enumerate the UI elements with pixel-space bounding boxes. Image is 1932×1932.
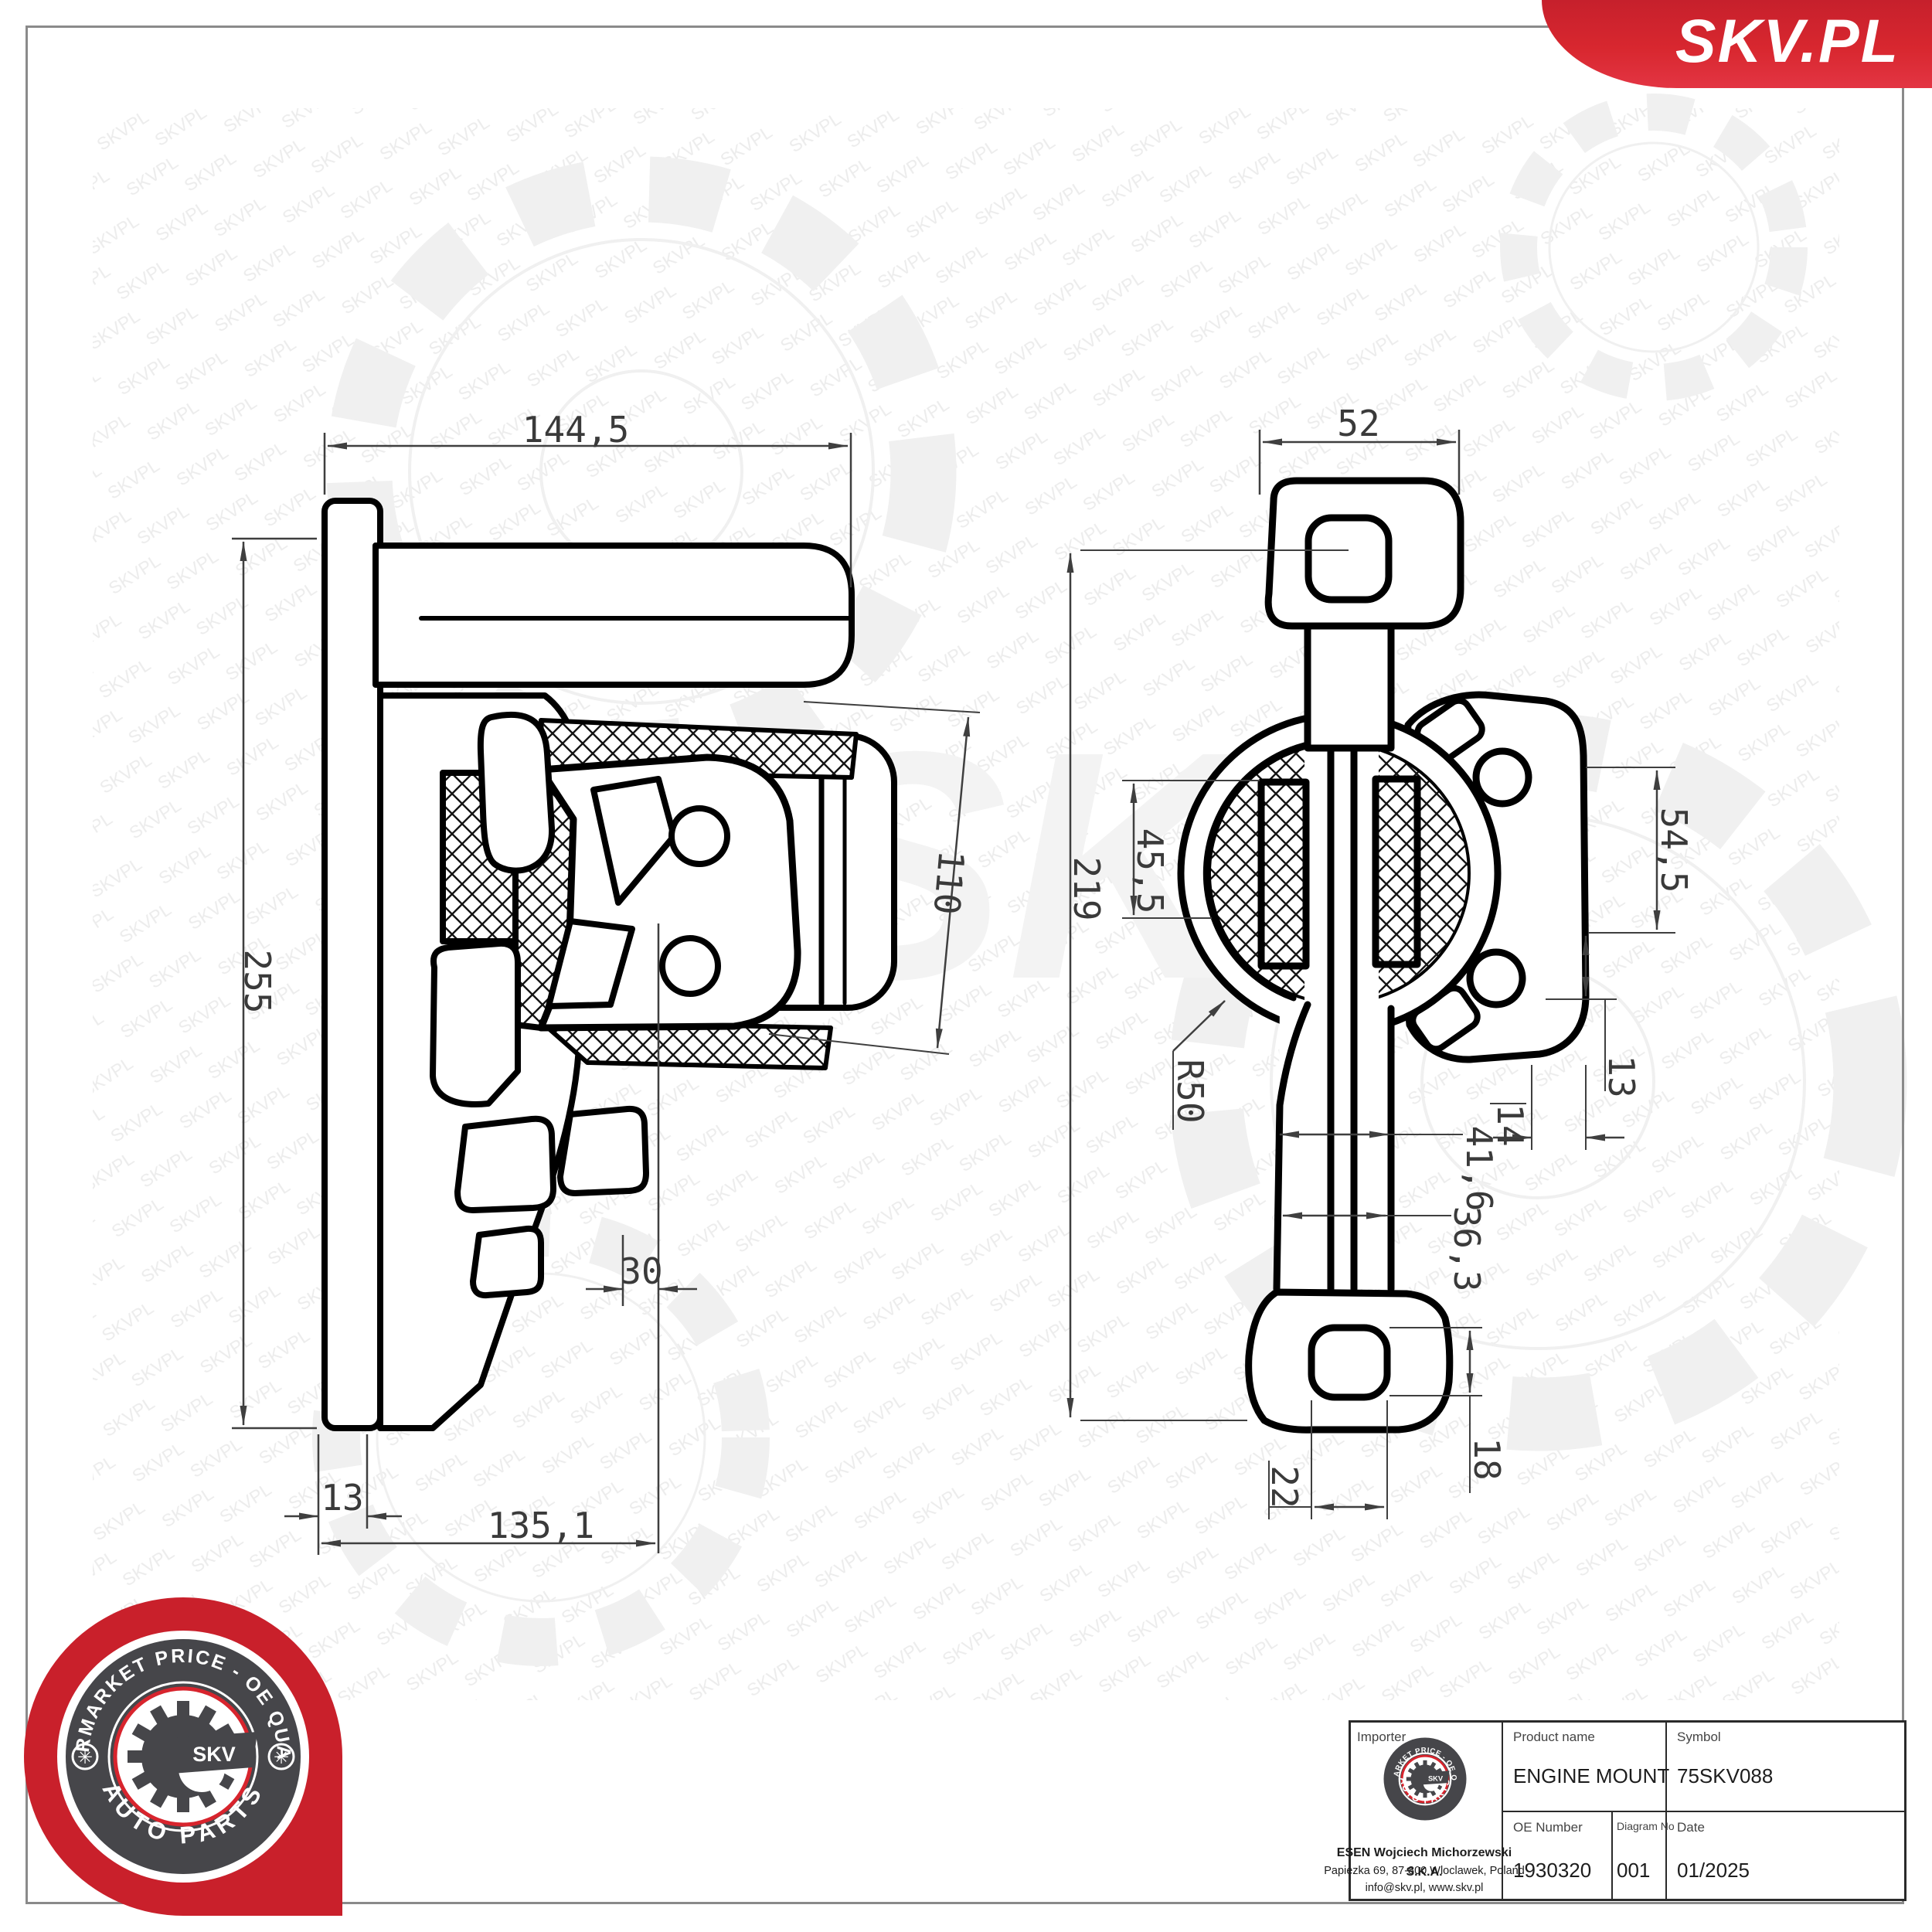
oe-number-value: 1930320: [1513, 1859, 1591, 1883]
symbol-value: 75SKV088: [1677, 1764, 1773, 1788]
svg-text:SKV: SKV: [1428, 1774, 1444, 1782]
drawing-page: SKVPL SKVPL: [0, 0, 1932, 1932]
product-name-value: ENGINE MOUNT: [1513, 1764, 1669, 1788]
symbol-label: Symbol: [1677, 1730, 1721, 1745]
badge-center-text: SKV: [192, 1743, 236, 1766]
importer-address: Papiezka 69, 87-800 Wloclawek, Poland: [1324, 1862, 1525, 1879]
skv-badge: AFTERMARKET PRICE - OE QUALITY AUTO PART…: [24, 1597, 342, 1916]
importer-contact: info@skv.pl, www.skv.pl: [1324, 1879, 1525, 1896]
date-label: Date: [1677, 1820, 1705, 1835]
svg-text:✳: ✳: [274, 1747, 289, 1768]
svg-text:✳: ✳: [77, 1747, 93, 1768]
diagram-no-label: Diagram No: [1617, 1820, 1675, 1832]
date-value: 01/2025: [1677, 1859, 1750, 1883]
importer-logo: AFTERMARKET PRICE - OE QUALITY AUTO PART…: [1380, 1734, 1470, 1824]
diagram-no-value: 001: [1617, 1859, 1650, 1883]
product-name-label: Product name: [1513, 1730, 1595, 1745]
oe-number-label: OE Number: [1513, 1820, 1583, 1835]
brand-logo-text: SKV.PL: [1675, 5, 1932, 83]
